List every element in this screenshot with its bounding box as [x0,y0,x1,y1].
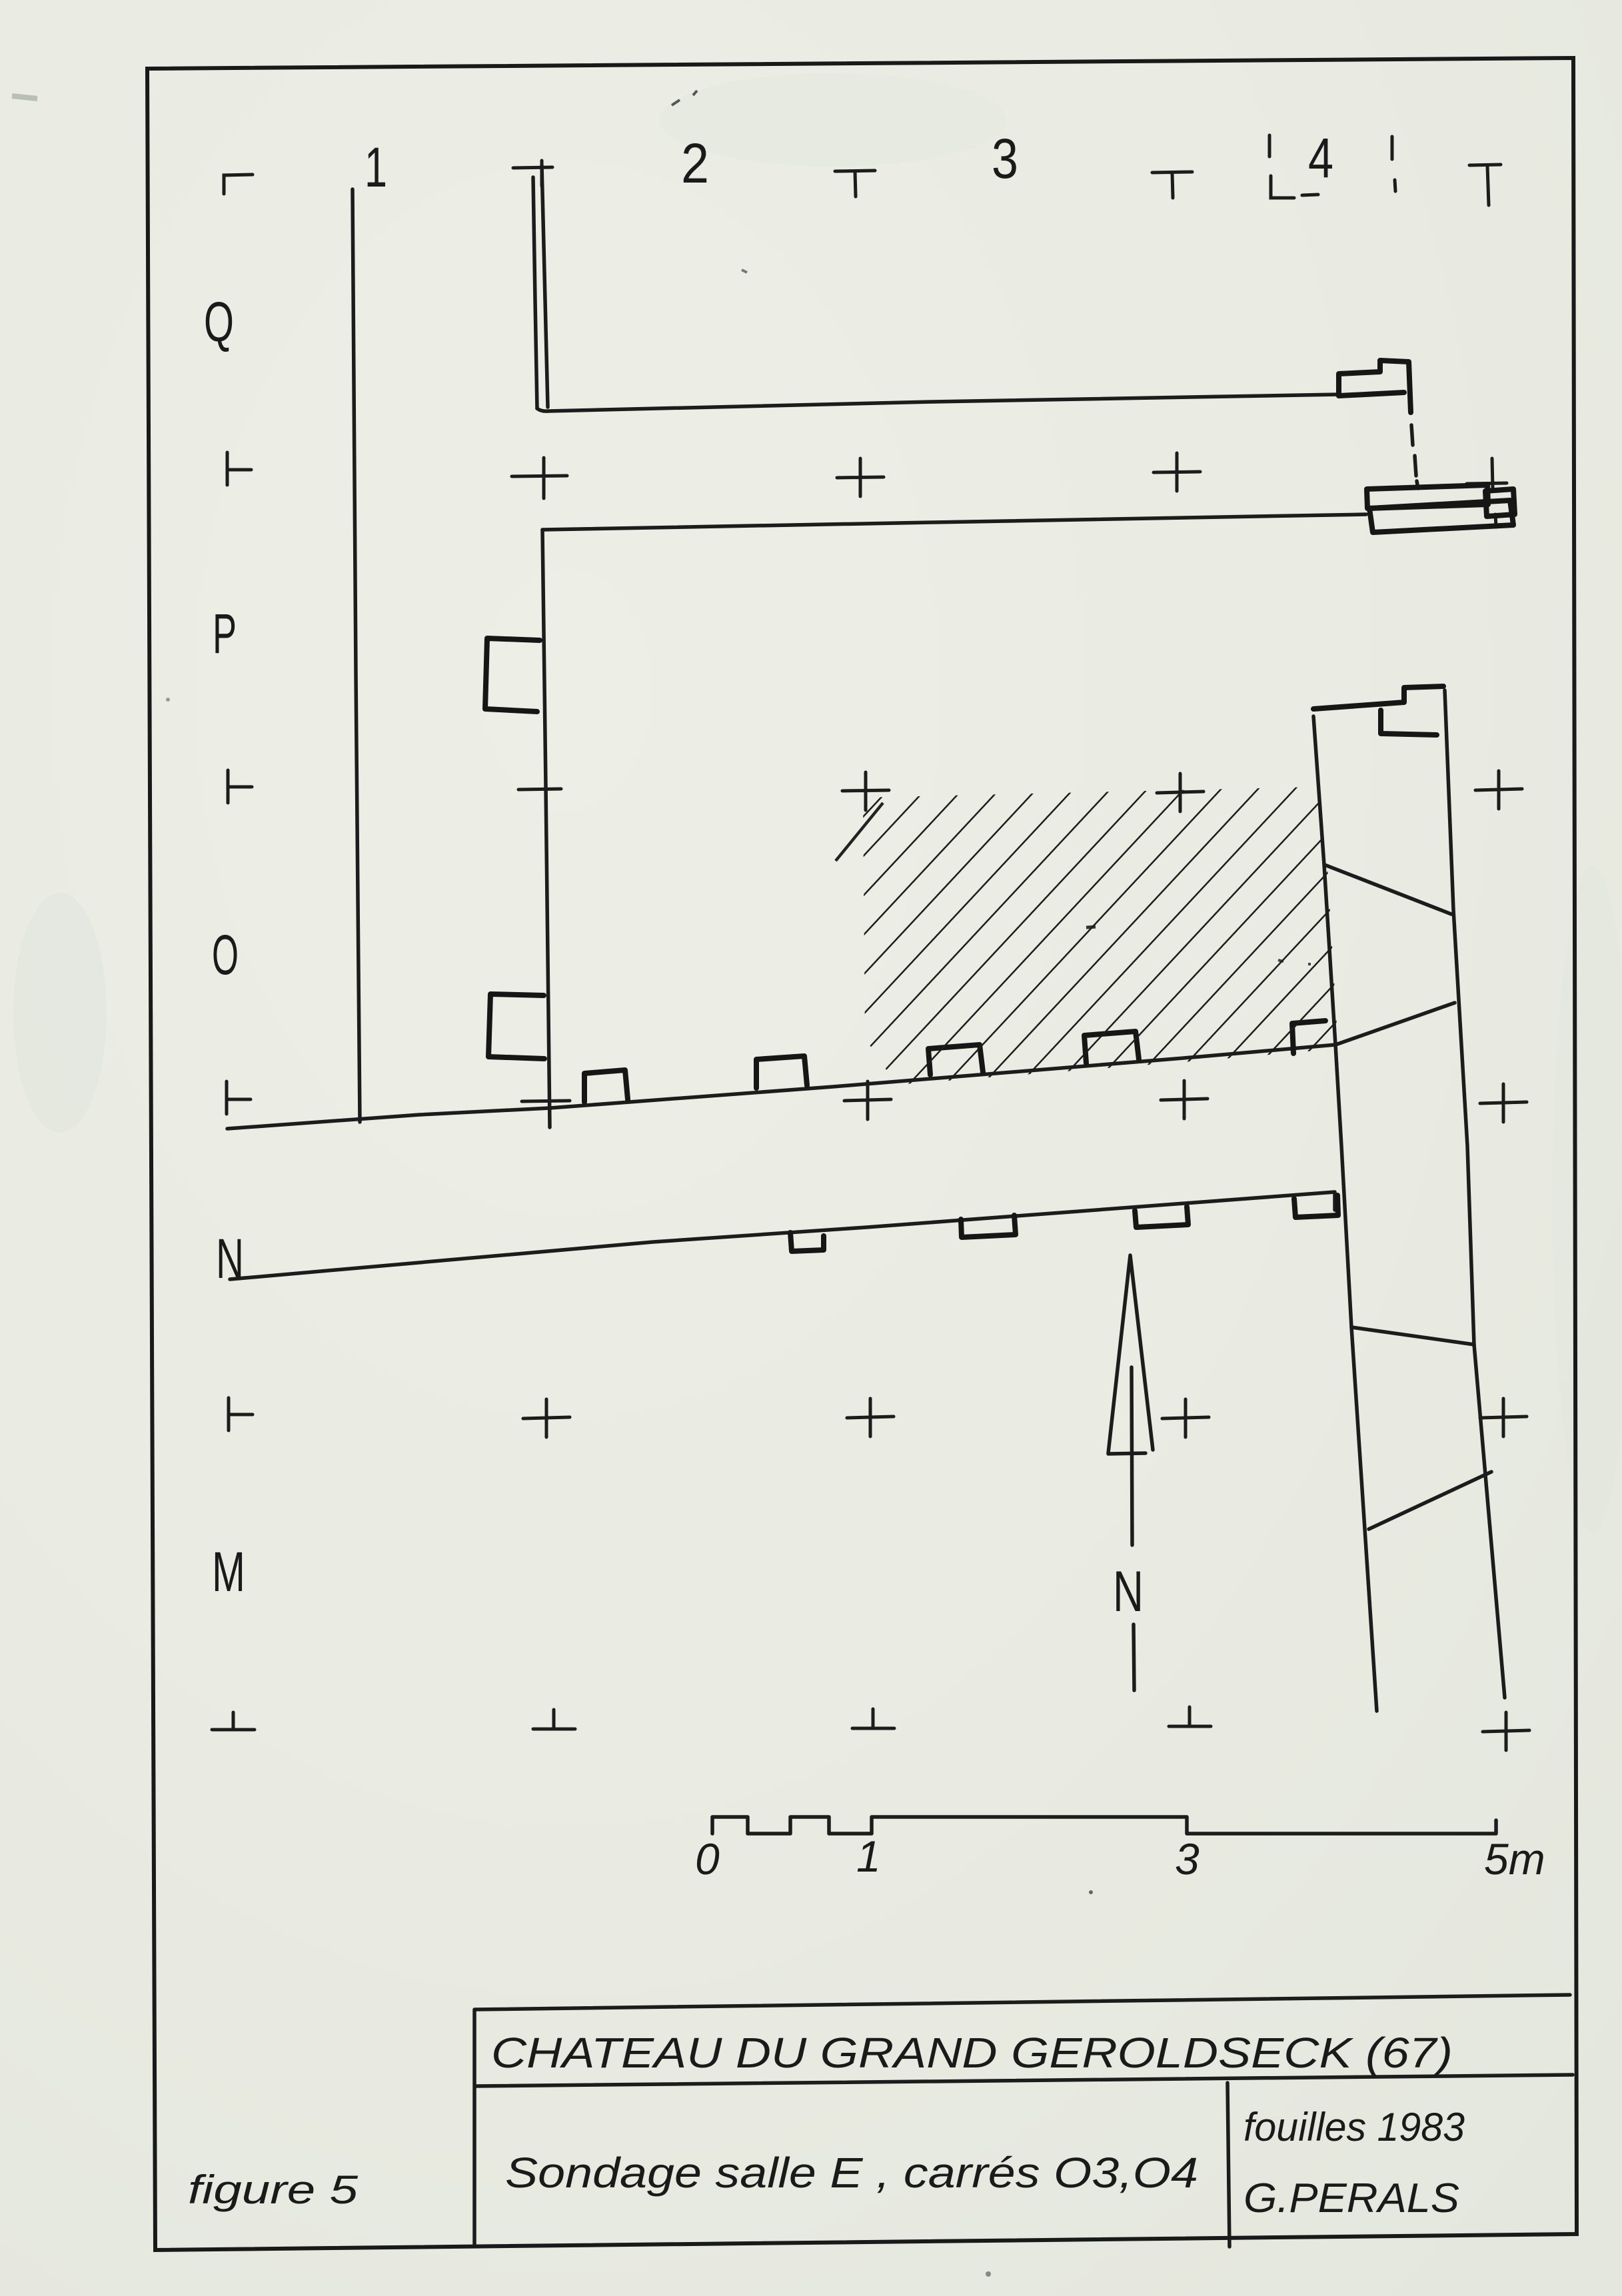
svg-text:N: N [1113,1560,1144,1624]
svg-text:5m: 5m [1484,1834,1545,1884]
svg-text:O: O [212,923,239,986]
svg-text:M: M [212,1540,245,1603]
svg-text:G.PERALS: G.PERALS [1243,2175,1459,2221]
svg-text:1: 1 [856,1832,881,1881]
svg-text:CHATEAU DU GRAND GEROLDSECK (6: CHATEAU DU GRAND GEROLDSECK (67) [491,2029,1453,2077]
svg-text:P: P [213,602,237,665]
svg-text:Q: Q [204,290,234,353]
svg-text:0: 0 [695,1834,720,1884]
svg-text:1: 1 [365,136,387,199]
svg-text:4: 4 [1308,127,1333,189]
svg-text:3: 3 [1175,1834,1200,1884]
svg-text:fouilles 1983: fouilles 1983 [1243,2105,1465,2149]
svg-text:3: 3 [992,127,1018,190]
svg-text:2: 2 [681,132,709,195]
svg-text:Sondage salle E , carrés O3,O: Sondage salle E , carrés O3,O4 [505,2149,1198,2197]
svg-text:figure 5: figure 5 [188,2167,359,2212]
